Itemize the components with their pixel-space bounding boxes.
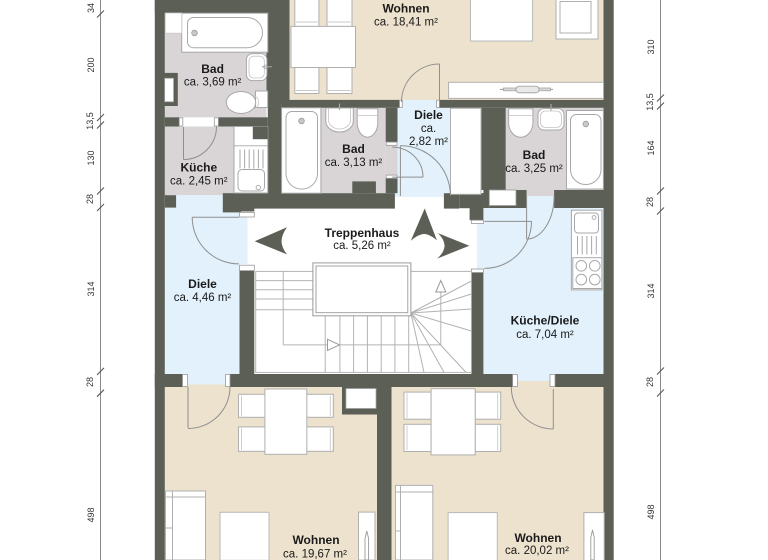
svg-text:2,82 m²: 2,82 m² <box>409 136 448 148</box>
svg-text:ca. 3,13 m²: ca. 3,13 m² <box>325 157 383 169</box>
svg-text:314: 314 <box>86 281 96 296</box>
svg-text:13,5: 13,5 <box>85 112 95 130</box>
svg-text:Bad: Bad <box>523 148 546 162</box>
svg-text:130: 130 <box>86 150 96 165</box>
svg-text:ca. 18,41 m²: ca. 18,41 m² <box>374 17 438 29</box>
svg-text:28: 28 <box>85 194 95 204</box>
svg-text:ca.: ca. <box>421 123 436 135</box>
svg-text:ca. 3,25 m²: ca. 3,25 m² <box>505 163 563 175</box>
svg-text:ca. 2,45 m²: ca. 2,45 m² <box>170 175 228 187</box>
svg-text:Küche/Diele: Küche/Diele <box>511 314 580 328</box>
svg-text:ca. 4,46 m²: ca. 4,46 m² <box>174 292 232 304</box>
svg-text:34: 34 <box>86 3 96 13</box>
svg-text:ca. 19,67 m²: ca. 19,67 m² <box>283 549 347 560</box>
svg-text:Diele: Diele <box>414 108 443 122</box>
svg-text:Treppenhaus: Treppenhaus <box>325 226 400 240</box>
svg-text:Bad: Bad <box>342 142 365 156</box>
svg-text:ca. 20,02 m²: ca. 20,02 m² <box>505 545 569 557</box>
svg-text:Diele: Diele <box>188 277 217 291</box>
svg-text:Wohnen: Wohnen <box>514 531 561 545</box>
svg-text:13,5: 13,5 <box>645 93 655 111</box>
svg-text:498: 498 <box>86 507 96 522</box>
svg-text:Wohnen: Wohnen <box>292 533 339 547</box>
svg-text:Wohnen: Wohnen <box>382 2 429 16</box>
svg-text:ca. 3,69 m²: ca. 3,69 m² <box>184 77 242 89</box>
svg-text:310: 310 <box>646 39 656 54</box>
svg-text:28: 28 <box>645 377 655 387</box>
svg-text:28: 28 <box>645 197 655 207</box>
svg-text:Bad: Bad <box>201 62 224 76</box>
svg-text:28: 28 <box>85 377 95 387</box>
svg-text:ca. 5,26 m²: ca. 5,26 m² <box>333 240 391 252</box>
svg-text:ca. 7,04 m²: ca. 7,04 m² <box>516 329 574 341</box>
svg-text:498: 498 <box>646 504 656 519</box>
svg-text:Küche: Küche <box>180 161 217 175</box>
svg-text:200: 200 <box>86 57 96 72</box>
svg-text:314: 314 <box>646 283 656 298</box>
svg-text:164: 164 <box>646 140 656 155</box>
